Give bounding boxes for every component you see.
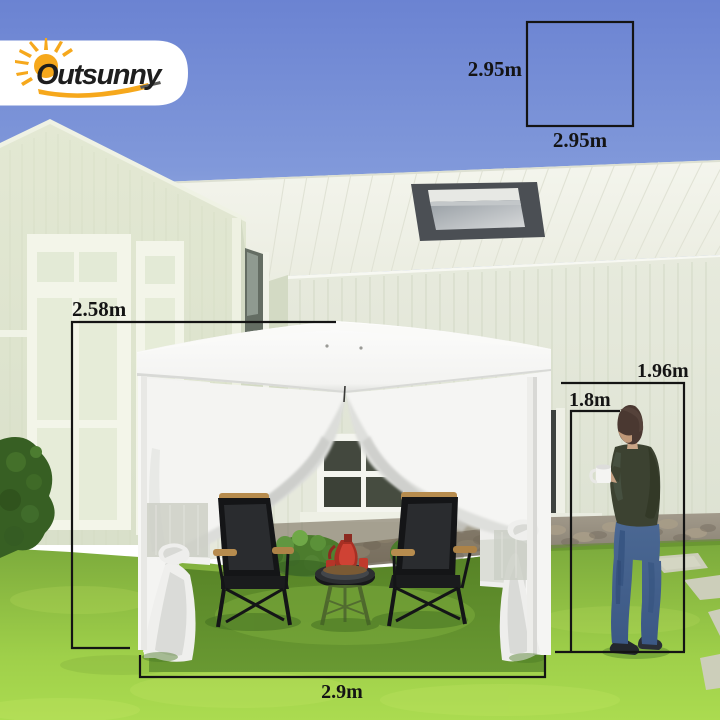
svg-text:Outsunny: Outsunny xyxy=(36,59,163,91)
svg-text:2.9m: 2.9m xyxy=(321,681,363,703)
svg-text:1.96m: 1.96m xyxy=(637,360,689,382)
svg-text:2.95m: 2.95m xyxy=(468,57,523,81)
svg-text:2.58m: 2.58m xyxy=(72,297,127,321)
svg-text:1.8m: 1.8m xyxy=(569,389,611,411)
svg-text:2.95m: 2.95m xyxy=(553,128,608,152)
